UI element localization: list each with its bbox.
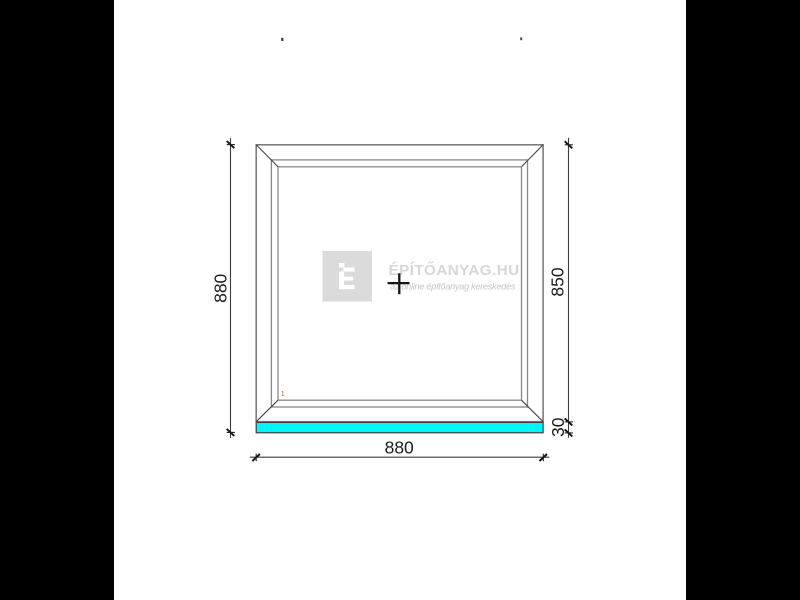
svg-text:880: 880 [210, 273, 230, 302]
svg-text:850: 850 [548, 267, 568, 296]
svg-text:1: 1 [281, 391, 285, 398]
svg-text:30: 30 [548, 417, 568, 437]
svg-text:880: 880 [385, 438, 414, 458]
svg-text:ÉPÍTŐANYAG.HU: ÉPÍTŐANYAG.HU [389, 261, 520, 279]
